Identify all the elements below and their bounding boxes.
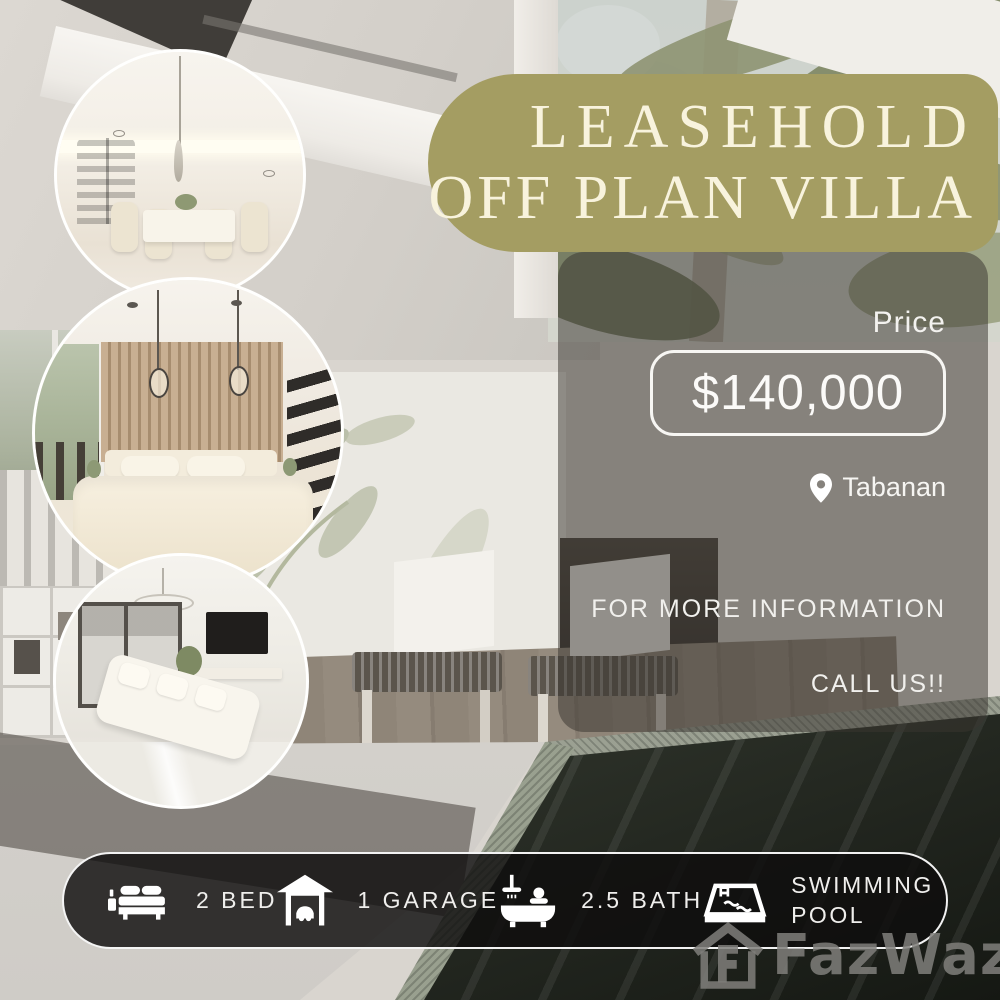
pendant-lamp — [229, 366, 249, 396]
watermark-brand-text: FazWaz — [772, 923, 1000, 988]
bedroom-photo — [35, 280, 341, 586]
title-badge: LEASEHOLD OFF PLAN VILLA — [428, 74, 998, 252]
lounge-chair-left — [352, 556, 502, 756]
price-panel: Price $140,000 Tabanan FOR MORE INFORMAT… — [558, 252, 988, 732]
wood-slat-wall — [101, 342, 283, 462]
villa-listing-poster: Price $140,000 Tabanan FOR MORE INFORMAT… — [0, 0, 1000, 1000]
info-line-1: FOR MORE INFORMATION — [591, 595, 946, 624]
title-line-2: OFF PLAN VILLA — [429, 166, 976, 231]
amenity-garage: 1 GARAGE — [277, 874, 499, 928]
amenity-bed: 2 BED — [108, 878, 277, 924]
info-line-2: CALL US!! — [811, 670, 946, 699]
bedroom-photo-circle — [32, 277, 344, 589]
pool-icon — [703, 875, 767, 927]
garage-icon — [277, 874, 333, 928]
price-value: $140,000 — [692, 365, 904, 421]
amenity-label: 2 BED — [196, 887, 277, 914]
bath-icon — [499, 873, 557, 929]
amenity-bath: 2.5 BATH — [499, 873, 703, 929]
dining-room-photo — [57, 52, 303, 298]
location-row: Tabanan — [810, 472, 946, 503]
fazwaz-watermark: FazWaz — [688, 920, 1000, 990]
dining-table — [143, 210, 235, 242]
amenity-label: 2.5 BATH — [581, 887, 703, 914]
map-pin-icon — [810, 473, 832, 503]
price-label: Price — [873, 306, 946, 340]
bed-icon — [108, 878, 172, 924]
pendant-lamp — [149, 368, 169, 398]
dining-room-photo-circle — [54, 49, 306, 301]
living-room-photo — [56, 556, 306, 806]
house-logo-icon — [688, 920, 768, 990]
amenity-label: 1 GARAGE — [357, 887, 499, 914]
title-line-1: LEASEHOLD — [530, 95, 976, 160]
location-name: Tabanan — [842, 472, 946, 503]
price-value-box: $140,000 — [650, 350, 946, 436]
living-room-photo-circle — [53, 553, 309, 809]
shelf-object — [14, 640, 40, 674]
tv-screen — [206, 612, 268, 654]
